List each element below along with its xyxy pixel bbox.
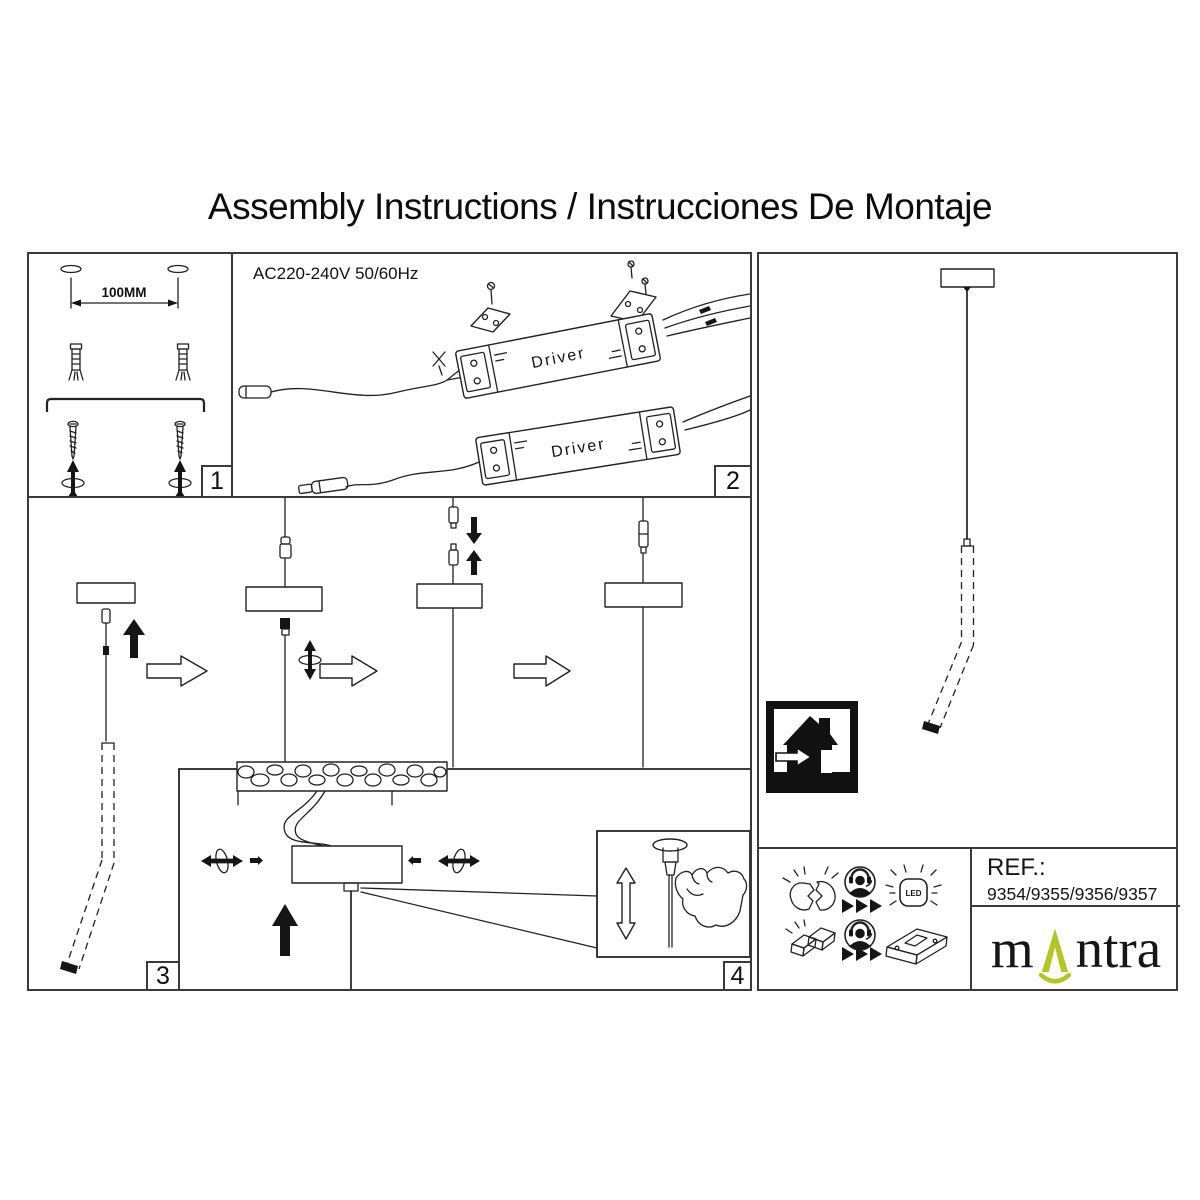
step-arrow-icon <box>320 656 377 686</box>
screw-icon <box>488 283 495 305</box>
panel-1-number: 1 <box>201 465 231 496</box>
screw-rotation-icon <box>408 848 480 874</box>
brand-caret-icon <box>1035 927 1075 989</box>
lamp-tip <box>922 721 940 734</box>
forward-triangles-icon <box>842 899 882 913</box>
brand-logo: m ntra <box>972 907 1180 976</box>
mains-wire-icon <box>239 352 464 398</box>
brand-text-ntra: ntra <box>1076 921 1162 976</box>
step-arrow-icon <box>514 656 570 686</box>
wall-plug-icon <box>69 344 83 380</box>
assembly-steps-drawing <box>29 498 750 989</box>
reference-cell: REF.: 9354/9355/9356/9357 m ntra <box>970 849 1180 989</box>
panel-1-fixings: 100MM <box>27 252 233 498</box>
step-arrow-icon <box>147 656 207 686</box>
step-join-connector <box>417 498 482 767</box>
service-person-icon <box>845 867 875 897</box>
panel-3-assembly: 3 4 <box>27 496 752 991</box>
footer-info: LED REF <box>757 847 1178 991</box>
lamp-tip <box>60 961 78 974</box>
step-assembled <box>605 498 682 767</box>
push-up-arrow-icon <box>123 619 145 658</box>
driver-unit-icon <box>475 407 680 486</box>
lamp-wire-connector <box>298 462 479 496</box>
dimension-label: 100MM <box>101 285 146 300</box>
ref-label: REF.: <box>987 854 1180 882</box>
join-up-arrow-icon <box>466 550 482 575</box>
detail-leader-line <box>361 888 597 896</box>
screw-icon <box>175 421 185 459</box>
power-rating-label: AC220-240V 50/60Hz <box>253 264 418 284</box>
led-lamp-icon: LED <box>886 865 941 906</box>
wall-plug-icon <box>176 344 190 380</box>
detail-leader-line <box>361 892 597 948</box>
pendant-tube-icon <box>922 539 974 734</box>
brand-text-m: m <box>991 921 1034 976</box>
push-up-arrow-icon <box>272 904 298 956</box>
ceiling-section <box>237 762 447 805</box>
screw-icon <box>628 261 648 294</box>
panel-4-detail <box>597 831 750 957</box>
driver-box-icon <box>886 929 947 964</box>
dimension-arrow-icon: 100MM <box>71 278 178 308</box>
screw-rotation-icon <box>201 848 263 874</box>
step-push-up <box>60 583 145 974</box>
panel-4-number: 4 <box>723 961 750 989</box>
panel-2-driver: AC220-240V 50/60Hz Driver <box>231 252 752 498</box>
led-label: LED <box>906 889 922 898</box>
service-person-icon <box>845 920 875 950</box>
panel-finished-pendant <box>757 252 1178 849</box>
panel-3-number: 3 <box>146 961 180 989</box>
screw-in-rotation-icon <box>62 460 84 496</box>
indoor-use-only-icon <box>770 705 854 789</box>
mounting-bracket-icon <box>47 399 204 412</box>
step-screw-fitting <box>246 498 322 764</box>
broken-driver-icon <box>786 920 835 956</box>
output-wires <box>663 294 750 336</box>
page-title: Assembly Instructions / Instrucciones De… <box>0 186 1200 228</box>
screw-in-rotation-icon <box>169 460 191 496</box>
output-wires <box>683 396 750 430</box>
keyhole-slot-icon <box>61 266 188 273</box>
service-icons: LED <box>759 849 968 989</box>
join-down-arrow-icon <box>466 517 482 544</box>
fixings-drawing: 100MM <box>29 254 231 496</box>
mounting-plate-icon <box>471 308 510 332</box>
pendant-drawing <box>759 254 1176 847</box>
screw-icon <box>68 421 78 459</box>
instruction-sheet: Assembly Instructions / Instrucciones De… <box>0 0 1200 1200</box>
screw-rotation-icon <box>299 640 321 680</box>
broken-led-icon <box>783 867 838 910</box>
canopy-mounting-detail <box>201 791 597 989</box>
ref-numbers: 9354/9355/9356/9357 <box>987 884 1180 905</box>
driver-wiring-drawing: Driver <box>233 254 750 496</box>
reference-block: REF.: 9354/9355/9356/9357 <box>972 849 1180 907</box>
panel-2-number: 2 <box>714 465 750 496</box>
canopy-icon <box>941 269 994 292</box>
